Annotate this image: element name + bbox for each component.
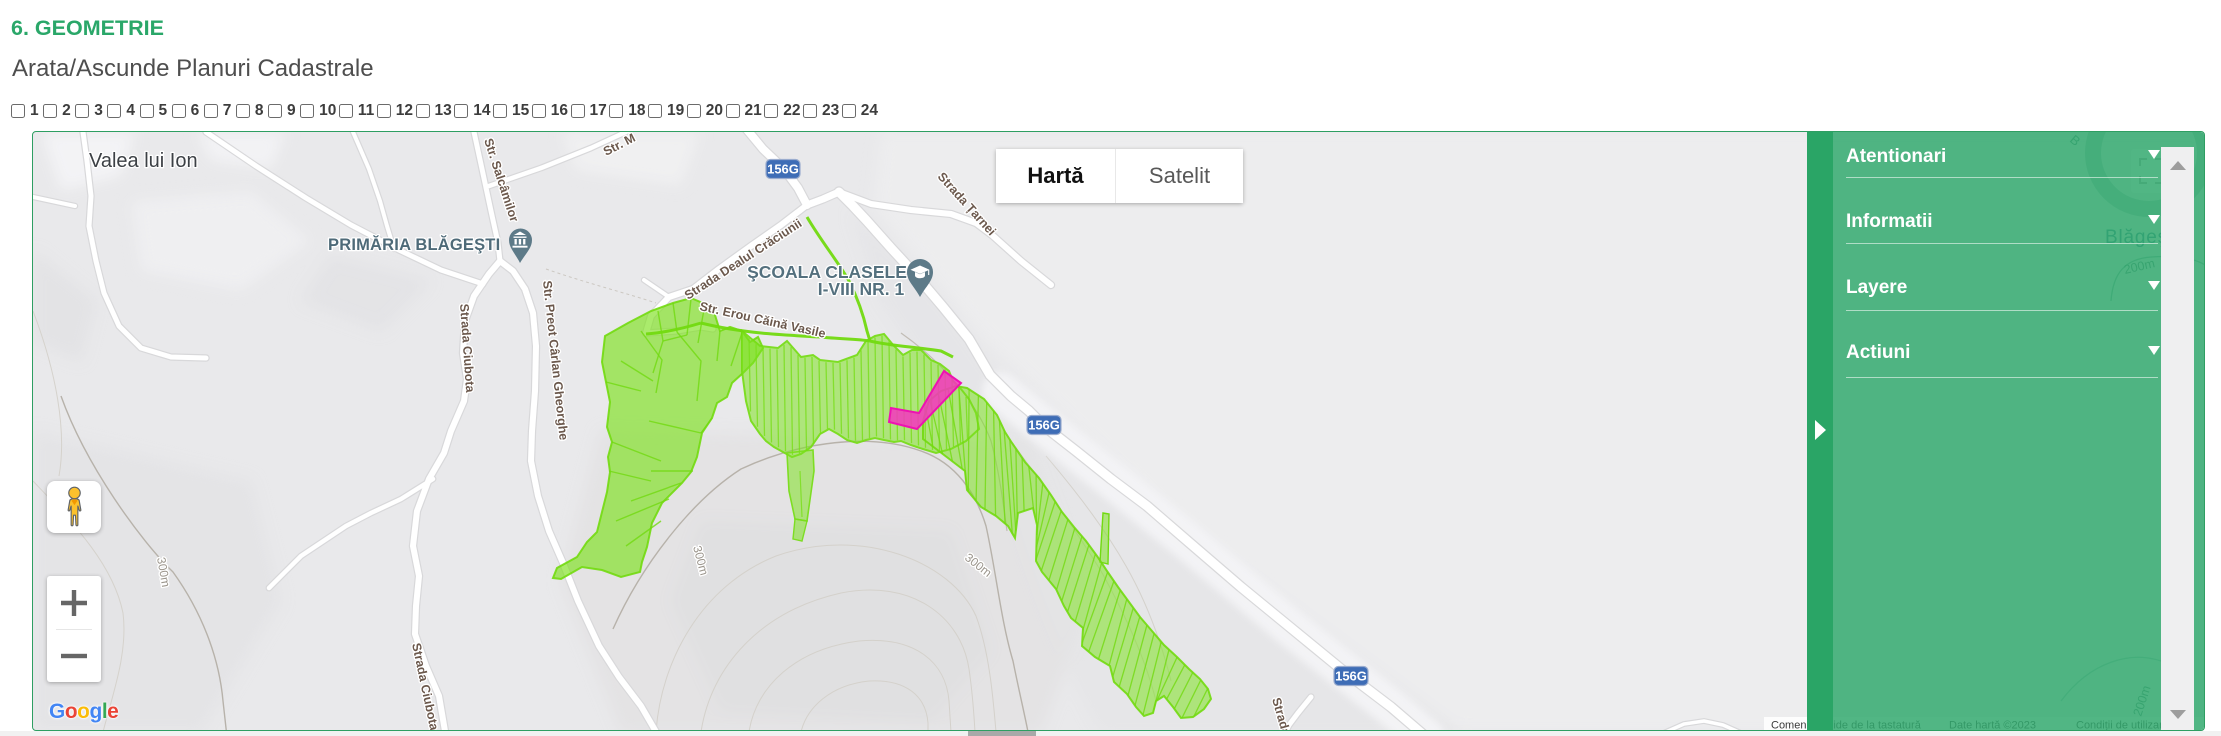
svg-text:Str. Preot Cârlan Gheorghe: Str. Preot Cârlan Gheorghe <box>540 280 571 441</box>
svg-text:Strada Dealul Crăciunii: Strada Dealul Crăciunii <box>682 216 804 302</box>
svg-text:156G: 156G <box>767 162 799 177</box>
svg-text:156G: 156G <box>1028 418 1060 433</box>
svg-text:Valea lui Ion: Valea lui Ion <box>89 150 198 172</box>
svg-text:156G: 156G <box>1335 669 1367 684</box>
svg-text:I-VIII NR. 1: I-VIII NR. 1 <box>818 279 905 299</box>
svg-text:PRIMĂRIA BLĂGEŞTI: PRIMĂRIA BLĂGEŞTI <box>328 235 500 254</box>
